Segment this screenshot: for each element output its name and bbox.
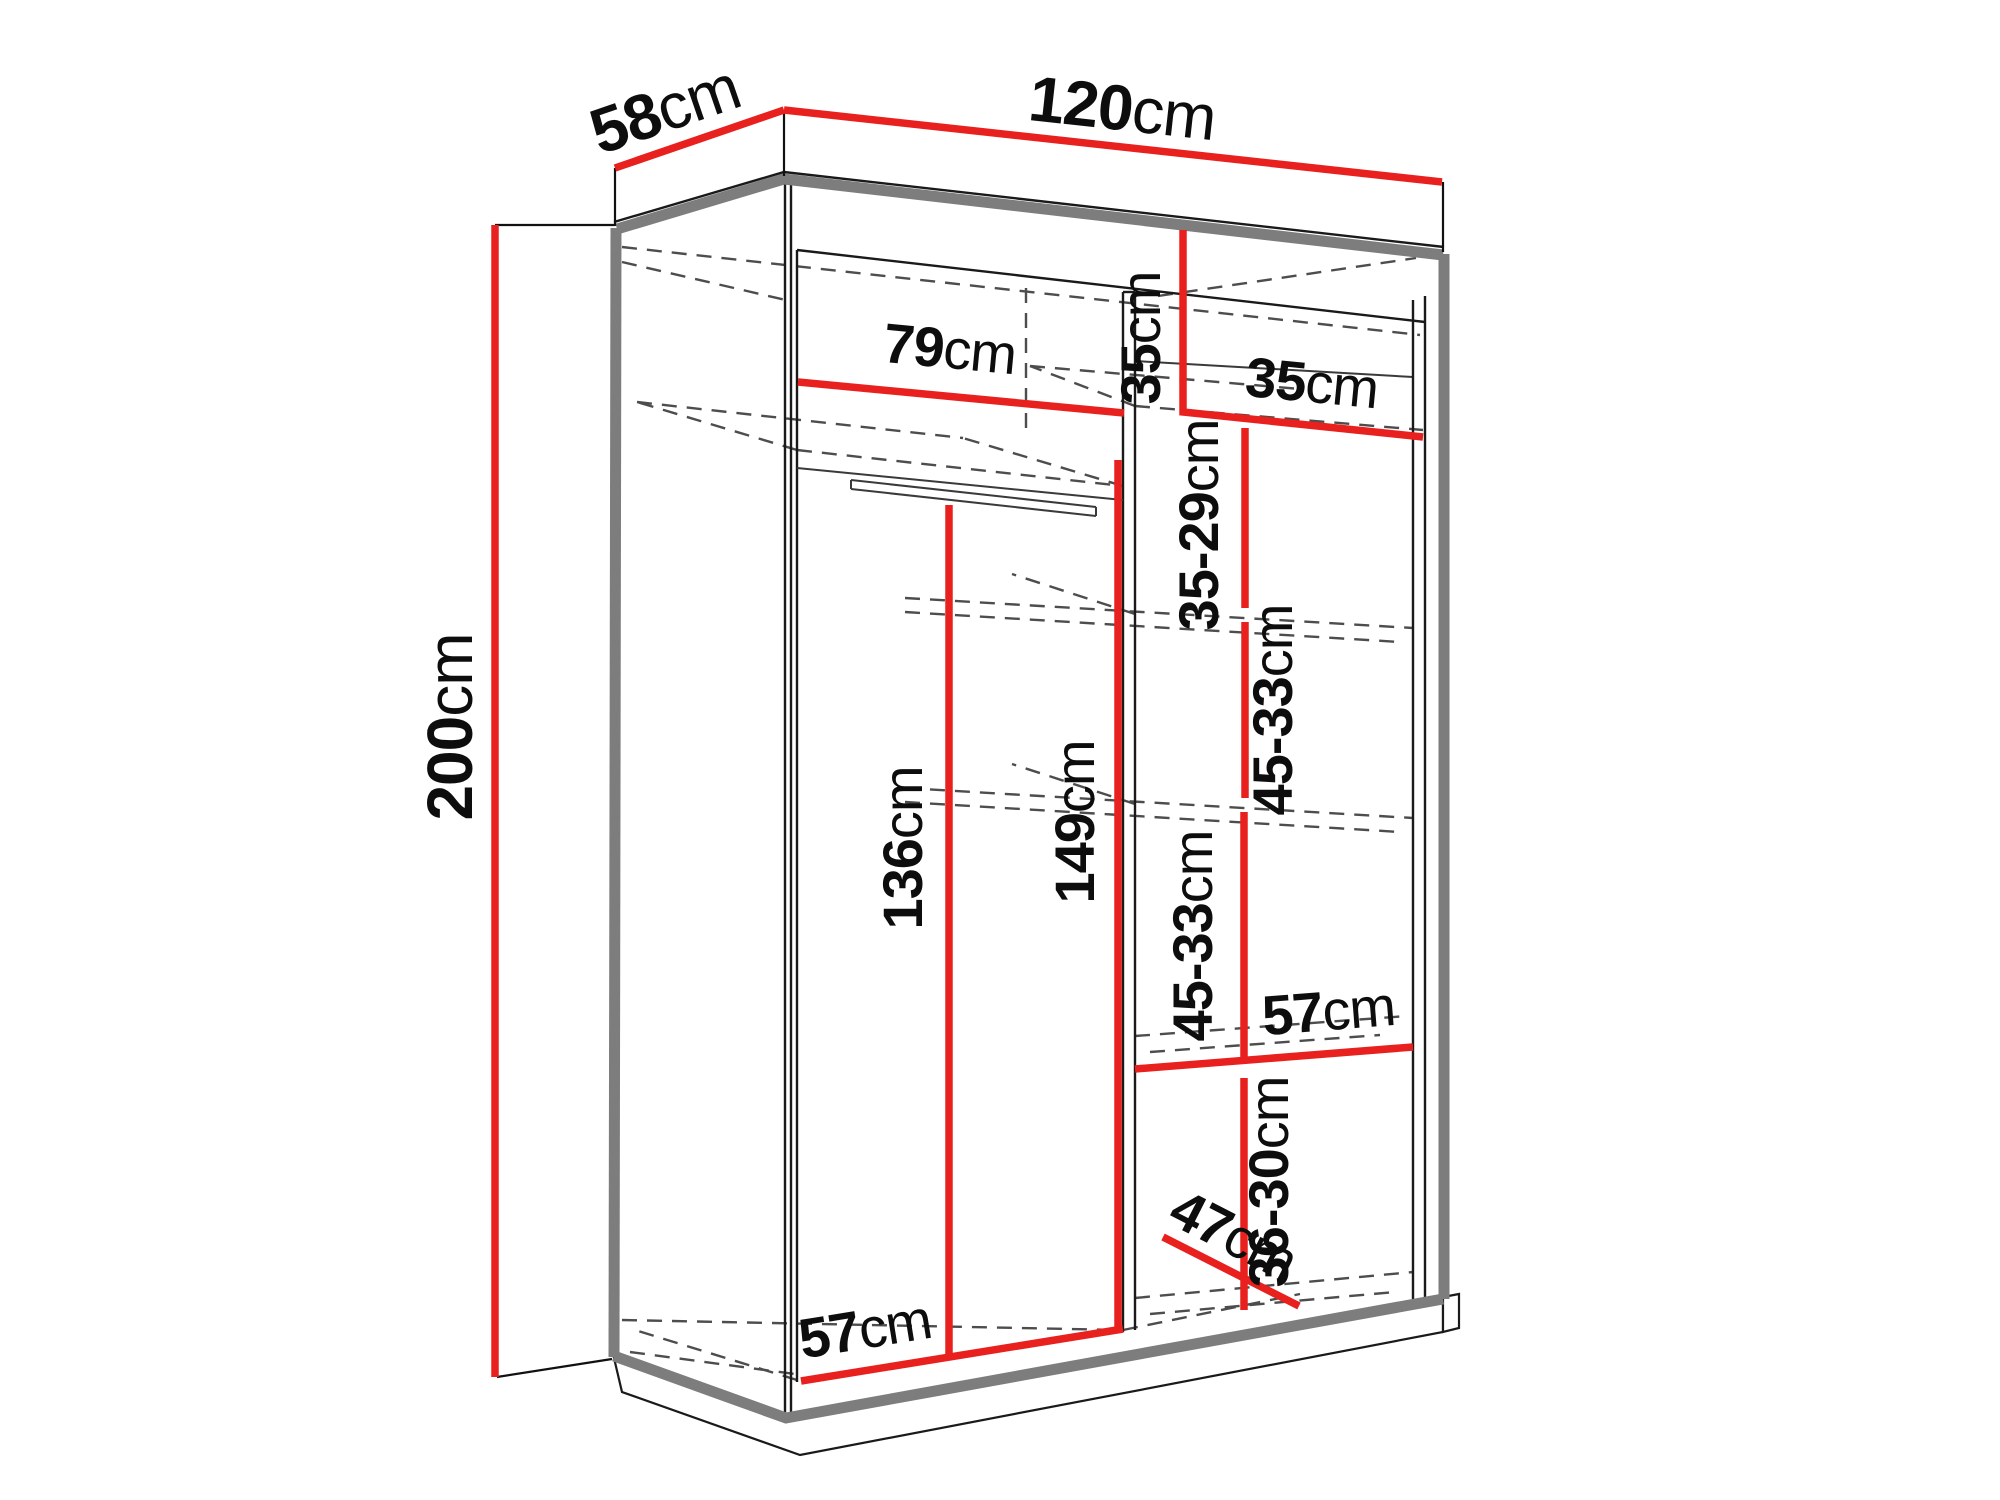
dimension-label-hanging-height: 136cm	[871, 766, 934, 929]
left-side-face	[614, 177, 786, 1420]
dimension-label-right-section-height: 149cm	[1043, 740, 1106, 903]
diagram-canvas: 58cm 120cm 200cm 79cm 35cm 35cm 35-29cm …	[0, 0, 2000, 1500]
dimension-label-cubby-width: 35cm	[1243, 345, 1381, 420]
dimension-label-cubby-height: 35cm	[1109, 272, 1172, 405]
dimension-label-right-shelf-width: 57cm	[1260, 974, 1397, 1047]
dimension-label-shelf-gap-lower: 45-33cm	[1161, 831, 1224, 1042]
dimension-label-shelf-gap-upper: 45-33cm	[1241, 605, 1304, 816]
dimension-label-shelf-gap-top: 35-29cm	[1167, 420, 1230, 631]
right-foot	[1443, 1294, 1459, 1332]
wardrobe-dimension-diagram: 58cm 120cm 200cm 79cm 35cm 35cm 35-29cm …	[0, 0, 2000, 1500]
dimension-label-top-inner-width: 79cm	[881, 311, 1019, 386]
dimension-label-height: 200cm	[414, 633, 486, 820]
